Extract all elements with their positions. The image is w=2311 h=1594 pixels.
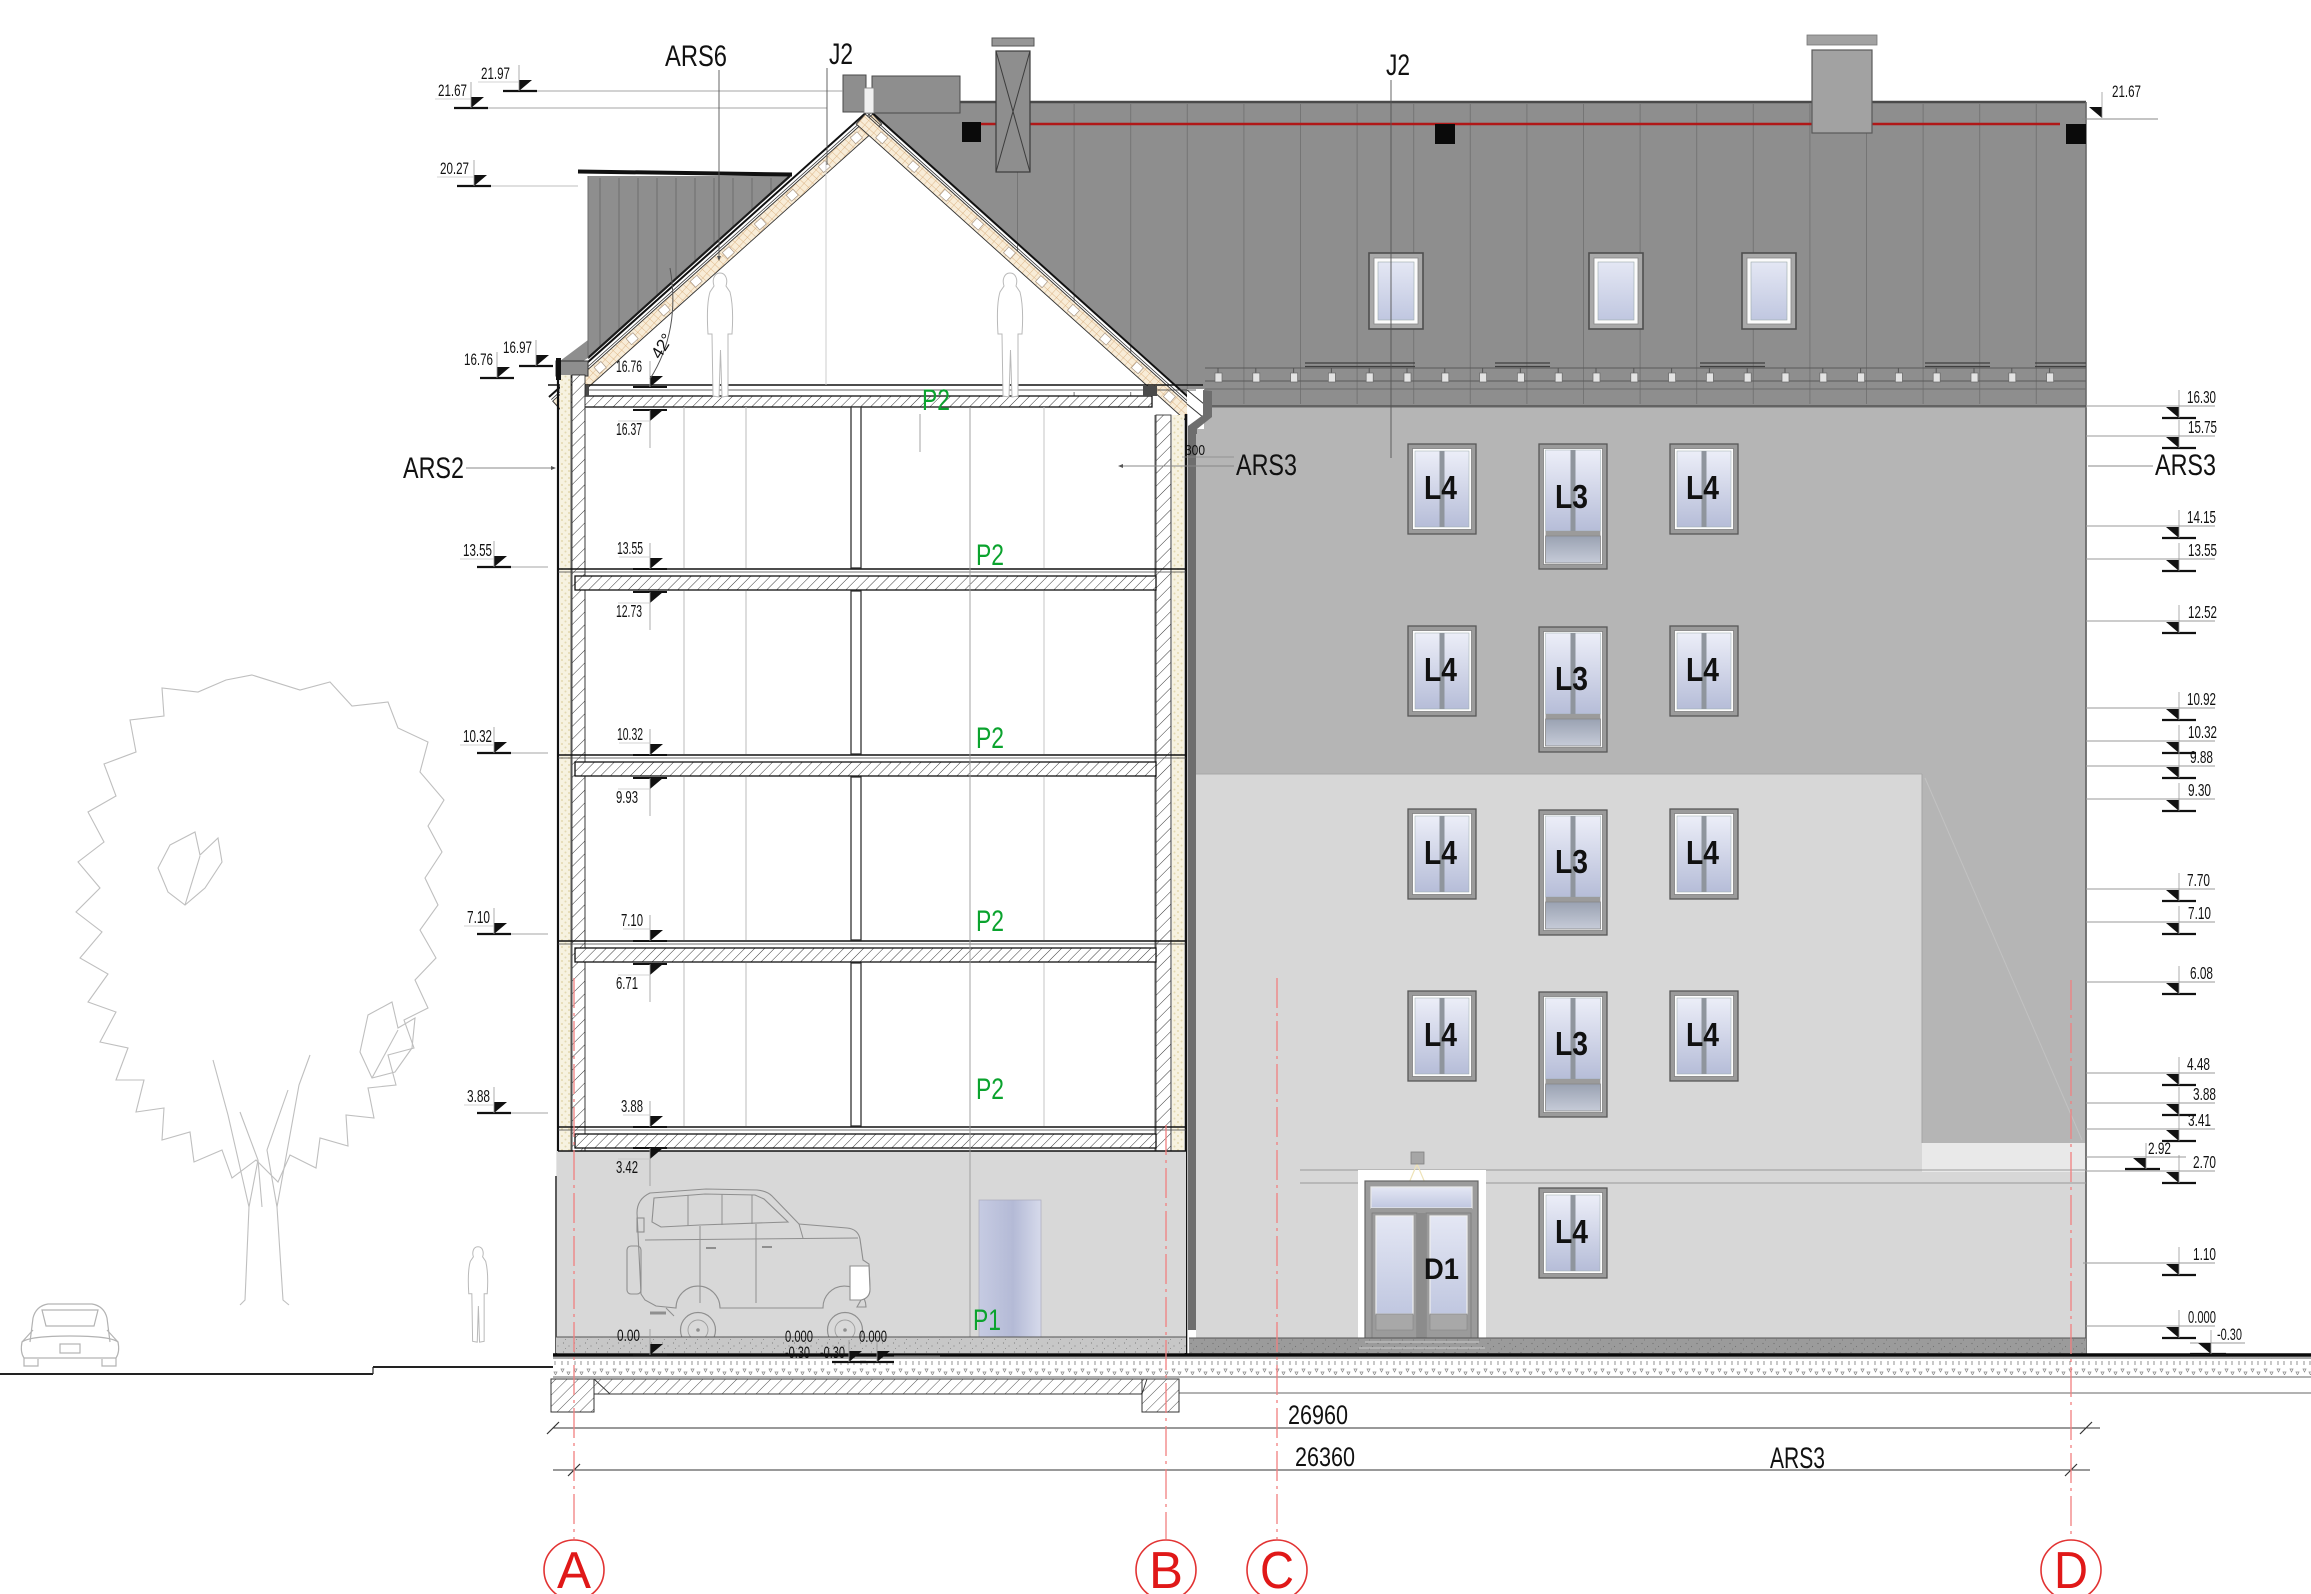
svg-text:7.10: 7.10 bbox=[621, 910, 643, 930]
svg-text:P2: P2 bbox=[976, 722, 1004, 755]
svg-text:ARS3: ARS3 bbox=[2155, 449, 2216, 482]
svg-text:P2: P2 bbox=[976, 539, 1004, 572]
svg-text:4.48: 4.48 bbox=[2187, 1054, 2210, 1074]
svg-text:21.67: 21.67 bbox=[438, 81, 467, 100]
svg-text:10.92: 10.92 bbox=[2187, 689, 2216, 709]
svg-text:ARS3: ARS3 bbox=[1770, 1442, 1825, 1475]
svg-text:-0.30: -0.30 bbox=[820, 1343, 845, 1362]
svg-text:9.30: 9.30 bbox=[2188, 780, 2211, 800]
svg-text:3.41: 3.41 bbox=[2188, 1110, 2211, 1130]
svg-text:21.67: 21.67 bbox=[2112, 82, 2141, 101]
svg-text:10.32: 10.32 bbox=[463, 726, 492, 746]
svg-text:16.76: 16.76 bbox=[464, 350, 493, 369]
svg-text:26360: 26360 bbox=[1295, 1442, 1355, 1472]
svg-text:0.000: 0.000 bbox=[859, 1327, 887, 1346]
svg-text:13.55: 13.55 bbox=[617, 538, 643, 558]
svg-text:12.52: 12.52 bbox=[2188, 602, 2217, 622]
svg-text:14.15: 14.15 bbox=[2187, 507, 2216, 527]
svg-text:1.10: 1.10 bbox=[2193, 1244, 2216, 1264]
svg-text:L4: L4 bbox=[1424, 651, 1458, 688]
svg-text:16.37: 16.37 bbox=[616, 419, 642, 439]
svg-text:J2: J2 bbox=[829, 38, 853, 71]
svg-text:L4: L4 bbox=[1424, 1016, 1458, 1053]
svg-text:J2: J2 bbox=[1386, 49, 1410, 82]
svg-text:B: B bbox=[1149, 1542, 1183, 1594]
svg-text:A: A bbox=[557, 1542, 591, 1594]
svg-text:P1: P1 bbox=[973, 1304, 1001, 1337]
svg-text:3.88: 3.88 bbox=[467, 1086, 490, 1106]
svg-text:ARS6: ARS6 bbox=[665, 40, 727, 73]
svg-text:10.32: 10.32 bbox=[617, 724, 643, 744]
svg-text:L4: L4 bbox=[1424, 834, 1458, 871]
svg-text:C: C bbox=[1260, 1542, 1294, 1594]
svg-text:L4: L4 bbox=[1686, 834, 1720, 871]
svg-text:10.32: 10.32 bbox=[2188, 722, 2217, 742]
svg-text:15.75: 15.75 bbox=[2188, 417, 2217, 437]
svg-text:D1: D1 bbox=[1424, 1253, 1459, 1286]
svg-text:-0.30: -0.30 bbox=[785, 1343, 810, 1362]
svg-text:6.08: 6.08 bbox=[2190, 963, 2213, 983]
svg-text:L4: L4 bbox=[1686, 469, 1720, 506]
svg-text:ARS3: ARS3 bbox=[1236, 449, 1297, 482]
svg-text:P2: P2 bbox=[976, 1073, 1004, 1106]
svg-text:300: 300 bbox=[1185, 442, 1205, 459]
svg-text:L3: L3 bbox=[1555, 843, 1588, 880]
svg-text:16.76: 16.76 bbox=[616, 357, 642, 376]
svg-text:9.88: 9.88 bbox=[2190, 747, 2213, 767]
svg-text:3.88: 3.88 bbox=[621, 1096, 643, 1116]
svg-text:7.70: 7.70 bbox=[2187, 870, 2210, 890]
svg-text:13.55: 13.55 bbox=[463, 540, 492, 560]
svg-text:21.97: 21.97 bbox=[481, 64, 510, 83]
svg-text:16.97: 16.97 bbox=[503, 338, 532, 357]
svg-text:13.55: 13.55 bbox=[2188, 540, 2217, 560]
svg-text:0.00: 0.00 bbox=[617, 1326, 640, 1345]
svg-text:2.92: 2.92 bbox=[2148, 1139, 2171, 1158]
svg-text:0.000: 0.000 bbox=[2188, 1307, 2216, 1327]
svg-text:2.70: 2.70 bbox=[2193, 1152, 2216, 1172]
svg-text:L4: L4 bbox=[1424, 469, 1458, 506]
svg-text:ARS2: ARS2 bbox=[403, 452, 464, 485]
svg-text:P2: P2 bbox=[976, 905, 1004, 938]
svg-text:12.73: 12.73 bbox=[616, 601, 642, 621]
svg-text:L4: L4 bbox=[1686, 651, 1720, 688]
svg-text:20.27: 20.27 bbox=[440, 159, 469, 178]
svg-text:L4: L4 bbox=[1686, 1016, 1720, 1053]
svg-text:L3: L3 bbox=[1555, 478, 1588, 515]
svg-text:D: D bbox=[2054, 1542, 2088, 1594]
svg-text:3.42: 3.42 bbox=[616, 1157, 638, 1177]
svg-text:7.10: 7.10 bbox=[2188, 903, 2211, 923]
svg-text:-0.30: -0.30 bbox=[2217, 1325, 2242, 1344]
svg-text:6.71: 6.71 bbox=[616, 973, 638, 993]
svg-text:L4: L4 bbox=[1555, 1213, 1589, 1250]
svg-text:7.10: 7.10 bbox=[467, 907, 490, 927]
svg-text:16.30: 16.30 bbox=[2187, 387, 2216, 407]
svg-text:L3: L3 bbox=[1555, 1025, 1588, 1062]
svg-text:L3: L3 bbox=[1555, 660, 1588, 697]
svg-text:9.93: 9.93 bbox=[616, 787, 638, 807]
svg-text:3.88: 3.88 bbox=[2193, 1084, 2216, 1104]
svg-text:26960: 26960 bbox=[1288, 1400, 1348, 1430]
svg-text:P2: P2 bbox=[922, 384, 950, 417]
